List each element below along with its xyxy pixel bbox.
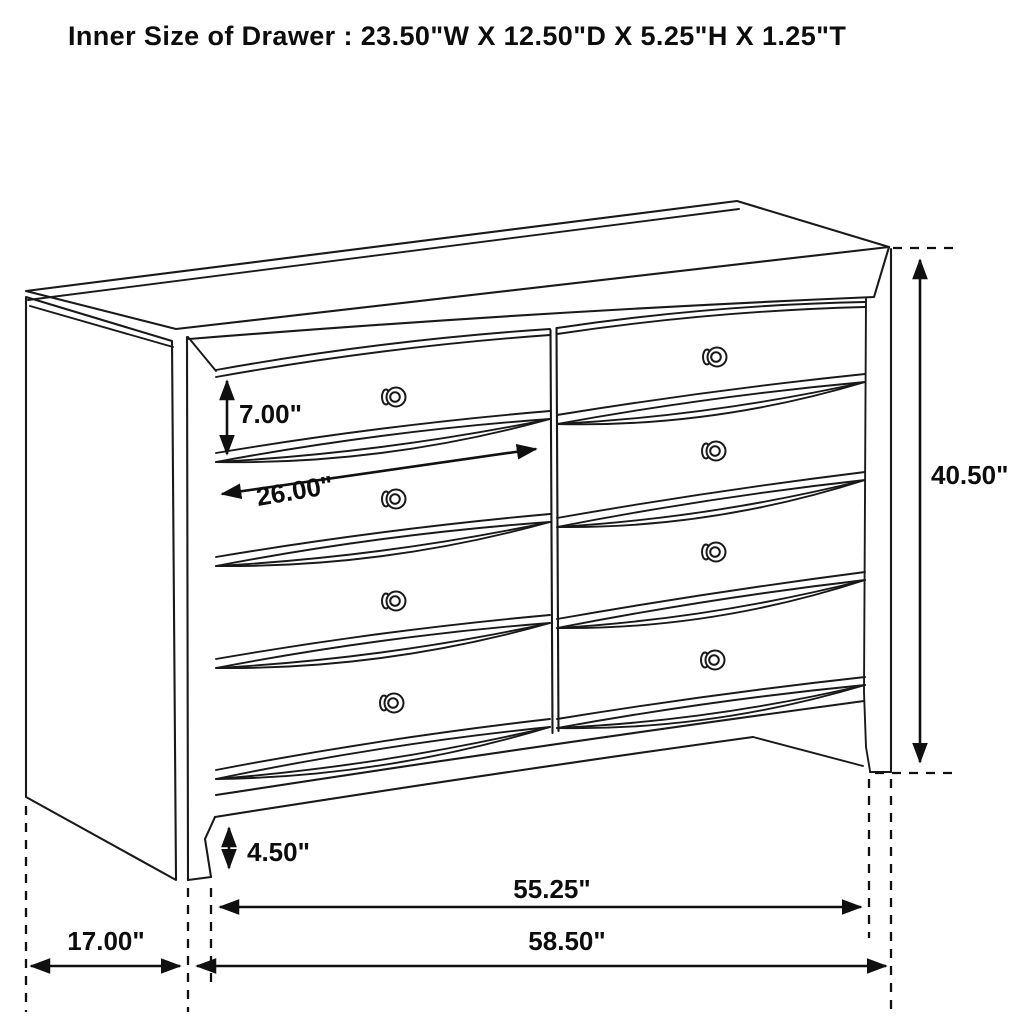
dimension-label-drawer-opening-width: 26.00" [254,470,335,512]
left-leg-bottom [188,877,211,880]
drawer-knobs [380,348,727,713]
dimension-base-height: 4.50" [229,828,310,868]
right-bracket-foot [753,737,863,766]
left-bevel-miter [188,337,216,371]
diagram-title: Inner Size of Drawer : 23.50"W X 12.50"D… [68,21,846,51]
dresser-top [26,201,889,347]
dimension-overall-width: 58.50" [197,926,886,966]
dimension-overall-height: 40.50" [920,260,1008,762]
drawer-knob [703,348,727,367]
center-divider-left-line [551,330,553,733]
dimension-width-between-legs: 55.25" [220,874,861,907]
dimension-depth: 17.00" [31,926,180,966]
drawer-knob [382,592,406,611]
center-divider-right-line [557,328,559,731]
dimension-label-width-between-legs: 55.25" [513,874,590,904]
left-stile-edge [187,337,188,880]
drawer-knob [382,388,406,407]
dimension-label-overall-width: 58.50" [528,926,605,956]
extension-lines [26,248,957,1012]
drawer-knob [382,490,406,509]
apron-top-edge [216,701,864,795]
drawer-knob [702,543,726,562]
diagram-canvas: Inner Size of Drawer : 23.50"W X 12.50"D… [0,0,1024,1024]
drawer-bands [216,302,865,779]
dresser-dimension-diagram: Inner Size of Drawer : 23.50"W X 12.50"D… [0,0,1024,1024]
dresser-side-panel [26,297,176,880]
dimension-label-drawer-opening-height: 7.00" [239,399,302,429]
dimension-label-overall-height: 40.50" [931,460,1008,490]
dimension-label-depth: 17.00" [67,926,144,956]
dimension-drawer-opening-height: 7.00" [227,381,302,454]
drawer-knob [701,651,725,670]
apron-bottom-edge [215,737,753,817]
drawer-knob [702,442,726,461]
left-leg-flare [205,817,215,877]
dimension-label-base-height: 4.50" [247,837,310,867]
right-stile-inner-edge [864,299,870,771]
drawer-knob [380,694,404,713]
